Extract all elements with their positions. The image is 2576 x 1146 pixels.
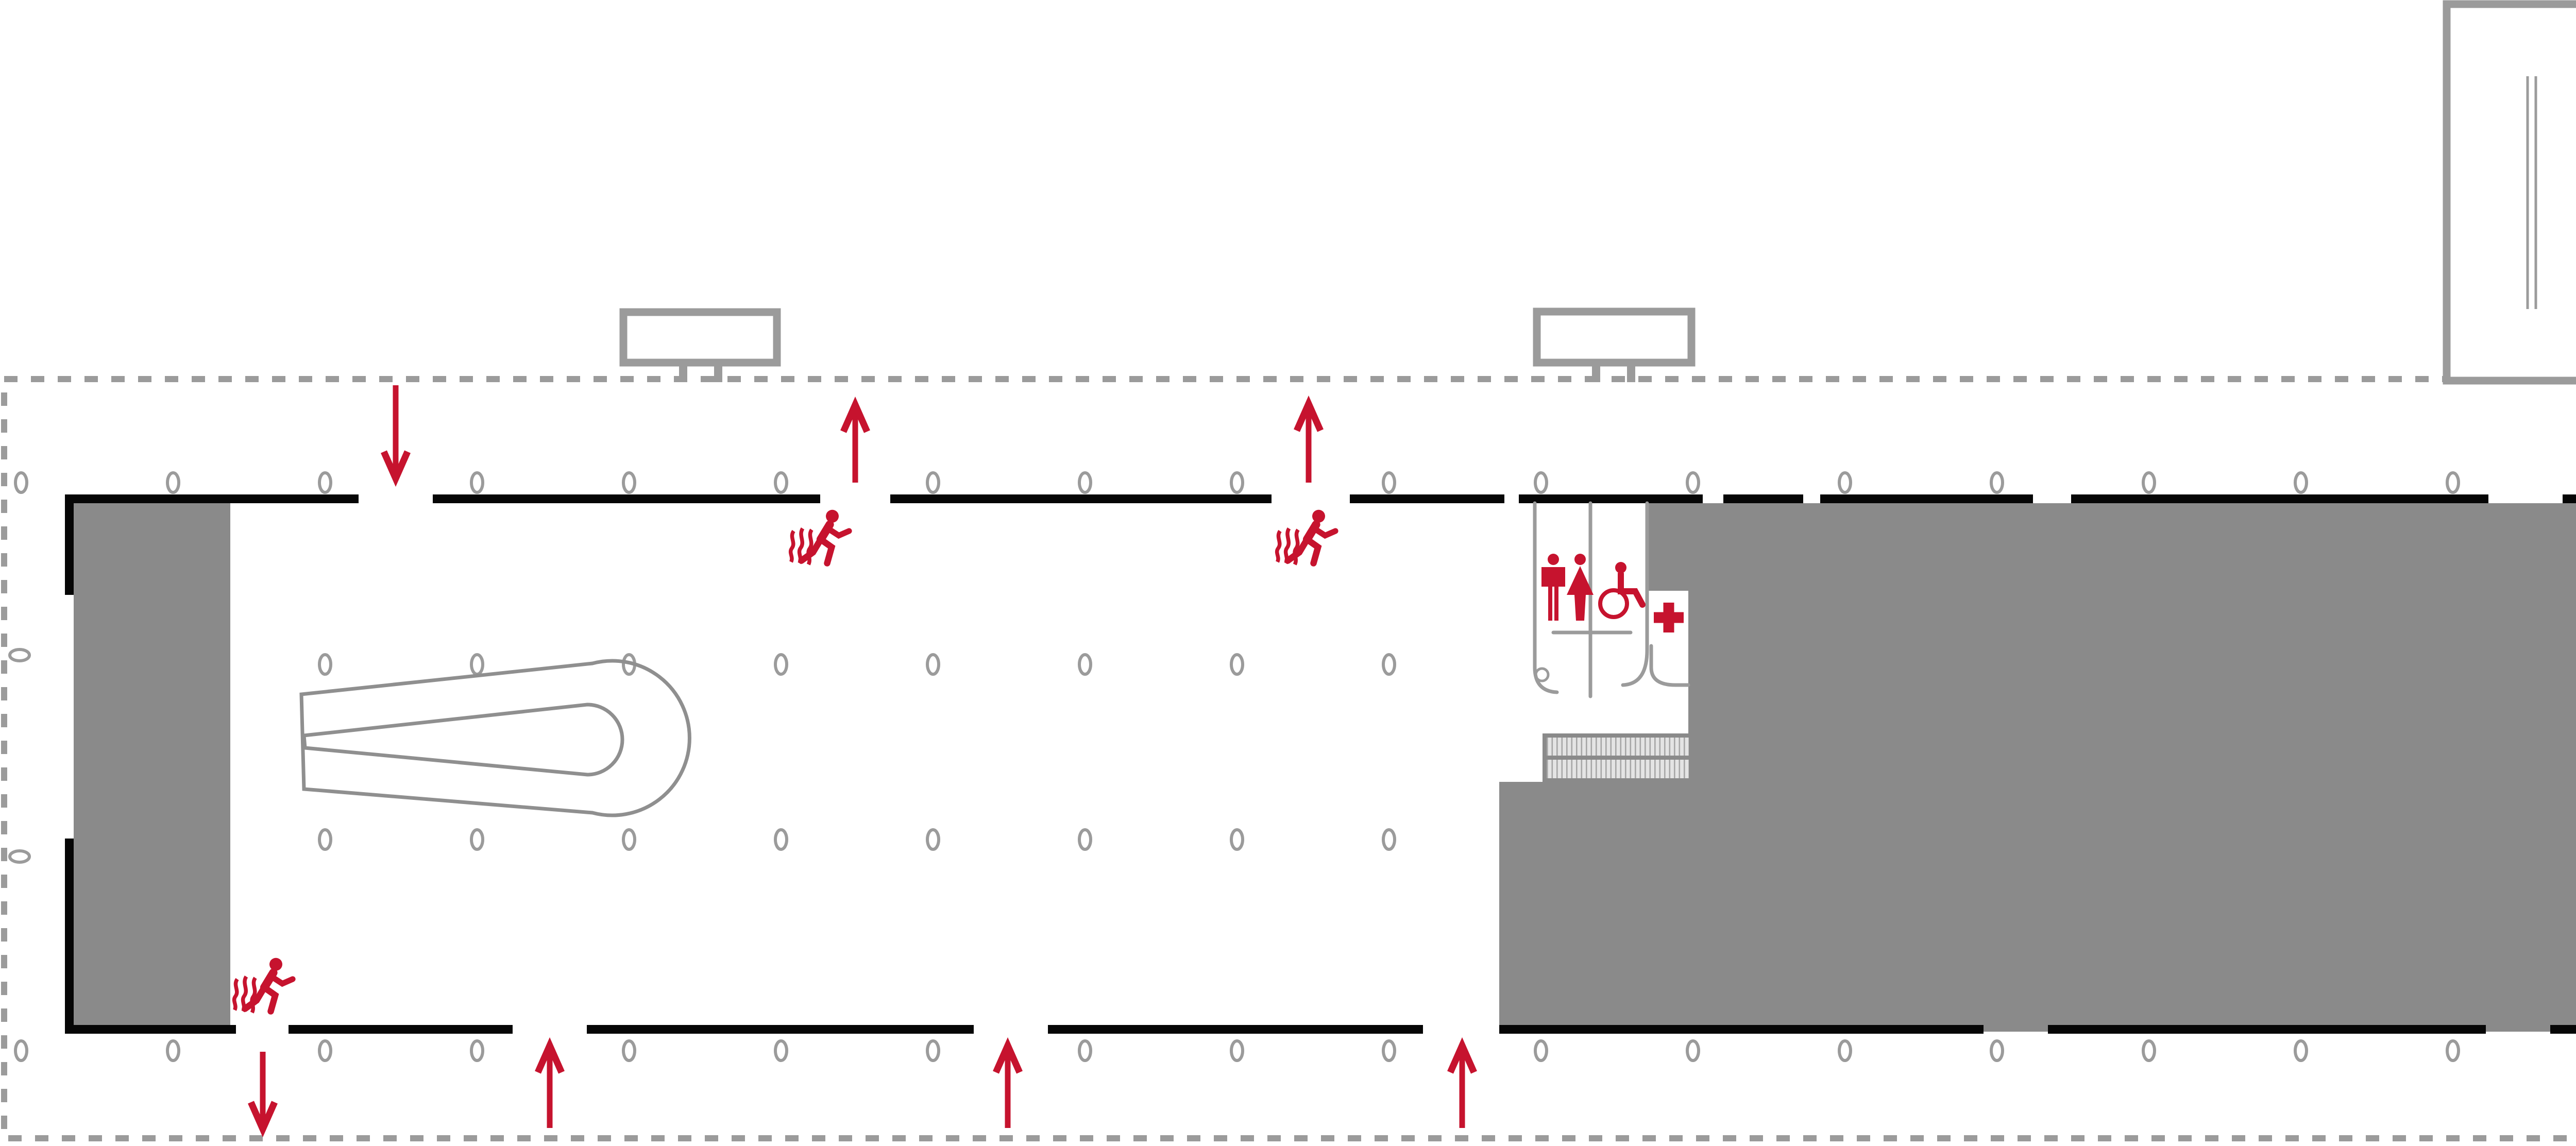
emergency-exit-arrow-top-1 xyxy=(843,405,867,483)
column-marker-interior xyxy=(1079,655,1091,674)
column-marker-top xyxy=(1535,473,1547,492)
column-marker-bottom xyxy=(1991,1041,2003,1061)
wheelchair-accessible-icon xyxy=(1600,562,1642,617)
column-marker-top xyxy=(319,473,331,492)
canopy-leg xyxy=(679,362,687,382)
column-marker-interior xyxy=(1231,830,1243,849)
column-marker-interior xyxy=(471,830,483,849)
column-marker-bottom xyxy=(775,1041,787,1061)
emergency-exit-running-man-icon xyxy=(791,510,849,565)
top-wall-segment xyxy=(1820,494,2033,503)
column-marker-bottom xyxy=(1839,1041,1851,1061)
bottom-wall-segment xyxy=(1048,1025,1423,1034)
column-marker-interior xyxy=(1383,655,1395,674)
column-marker-top xyxy=(2447,473,2459,492)
zone-edge-line xyxy=(2033,503,2071,506)
column-marker-side xyxy=(10,851,29,862)
closed-zone-left xyxy=(74,503,230,1025)
column-marker-bottom xyxy=(167,1041,179,1061)
column-marker-top xyxy=(1687,473,1699,492)
column-marker-top xyxy=(1383,473,1395,492)
left-wall-segment xyxy=(65,494,74,595)
column-marker-interior xyxy=(1383,830,1395,849)
bottom-wall-segment xyxy=(2550,1025,2576,1034)
first-aid-cross-icon xyxy=(1664,603,1674,632)
column-marker-top xyxy=(1079,473,1091,492)
column-marker-bottom xyxy=(2143,1041,2155,1061)
bottom-wall-segment xyxy=(1499,1025,1984,1034)
entrance-arrow-bottom-1 xyxy=(538,1046,562,1128)
top-wall-segment xyxy=(1723,494,1803,503)
column-marker-interior xyxy=(1079,830,1091,849)
bottom-wall-segment xyxy=(289,1025,513,1034)
gray-zones xyxy=(74,503,2576,1032)
column-marker-top xyxy=(775,473,787,492)
top-wall-segment xyxy=(1350,494,1504,503)
top-wall-segment xyxy=(1519,494,1703,503)
stairs xyxy=(1543,733,1689,782)
bottom-wall-segment xyxy=(587,1025,974,1034)
zone-door-tab xyxy=(1984,1025,2048,1032)
canopy-leg xyxy=(714,362,722,382)
column-marker-top xyxy=(2143,473,2155,492)
floor-plan-svg xyxy=(0,0,2576,1146)
column-marker-interior xyxy=(927,655,939,674)
toilet-man-icon xyxy=(1541,554,1565,621)
column-marker-bottom xyxy=(623,1041,635,1061)
column-marker-bottom xyxy=(1687,1041,1699,1061)
tower-outline xyxy=(2447,4,2576,381)
emergency-exit-running-man-icon xyxy=(234,958,293,1013)
canopy-leg xyxy=(1627,362,1635,382)
top-wall-segment xyxy=(433,494,820,503)
top-wall-segment xyxy=(65,494,359,503)
column-marker-top xyxy=(167,473,179,492)
column-marker-bottom xyxy=(2295,1041,2307,1061)
column-marker-interior xyxy=(319,830,331,849)
column-marker-bottom xyxy=(1535,1041,1547,1061)
column-marker-top xyxy=(927,473,939,492)
column-marker-top xyxy=(1231,473,1243,492)
column-marker-bottom xyxy=(1079,1041,1091,1061)
column-marker-bottom xyxy=(15,1041,27,1061)
column-marker-bottom xyxy=(2447,1041,2459,1061)
top-wall-segment xyxy=(890,494,1272,503)
column-marker-interior xyxy=(471,655,483,674)
floor-plan-page xyxy=(0,0,2576,1146)
column-marker-interior xyxy=(927,830,939,849)
emergency-exit-arrow-bottom xyxy=(251,1052,275,1129)
entrance-arrow-top xyxy=(384,385,408,478)
top-wall-segment xyxy=(2563,494,2576,503)
column-marker-bottom xyxy=(1383,1041,1395,1061)
column-marker-top xyxy=(15,473,27,492)
column-marker-top xyxy=(1839,473,1851,492)
canopy-outline xyxy=(623,312,777,363)
canopy-leg xyxy=(1592,362,1600,382)
column-marker-interior xyxy=(775,655,787,674)
column-marker-bottom xyxy=(927,1041,939,1061)
column-marker-side xyxy=(10,649,29,661)
column-marker-top xyxy=(2295,473,2307,492)
emergency-exit-arrow-top-2 xyxy=(1297,404,1320,483)
zone-door-tab xyxy=(2486,1025,2550,1032)
column-marker-interior xyxy=(319,655,331,674)
column-marker-top xyxy=(471,473,483,492)
top-wall-segment xyxy=(2071,494,2488,503)
entrance-arrow-bottom-3 xyxy=(1450,1046,1474,1128)
column-marker-bottom xyxy=(1231,1041,1243,1061)
left-wall-segment xyxy=(65,839,74,1034)
column-marker-top xyxy=(1991,473,2003,492)
baggage-carousel xyxy=(301,661,689,815)
column-marker-top xyxy=(623,473,635,492)
canopy-outline xyxy=(1537,312,1691,363)
outside-structures xyxy=(623,4,2576,382)
column-marker-interior xyxy=(1231,655,1243,674)
column-marker-bottom xyxy=(471,1041,483,1061)
column-marker-interior xyxy=(623,830,635,849)
column-marker-interior xyxy=(775,830,787,849)
column-marker-bottom xyxy=(319,1041,331,1061)
door-swing-mark xyxy=(1536,669,1548,681)
bottom-wall-segment xyxy=(2048,1025,2486,1034)
entrance-arrow-bottom-2 xyxy=(996,1046,1020,1128)
emergency-exit-running-man-icon xyxy=(1277,510,1335,565)
bottom-wall-segment xyxy=(65,1025,236,1034)
